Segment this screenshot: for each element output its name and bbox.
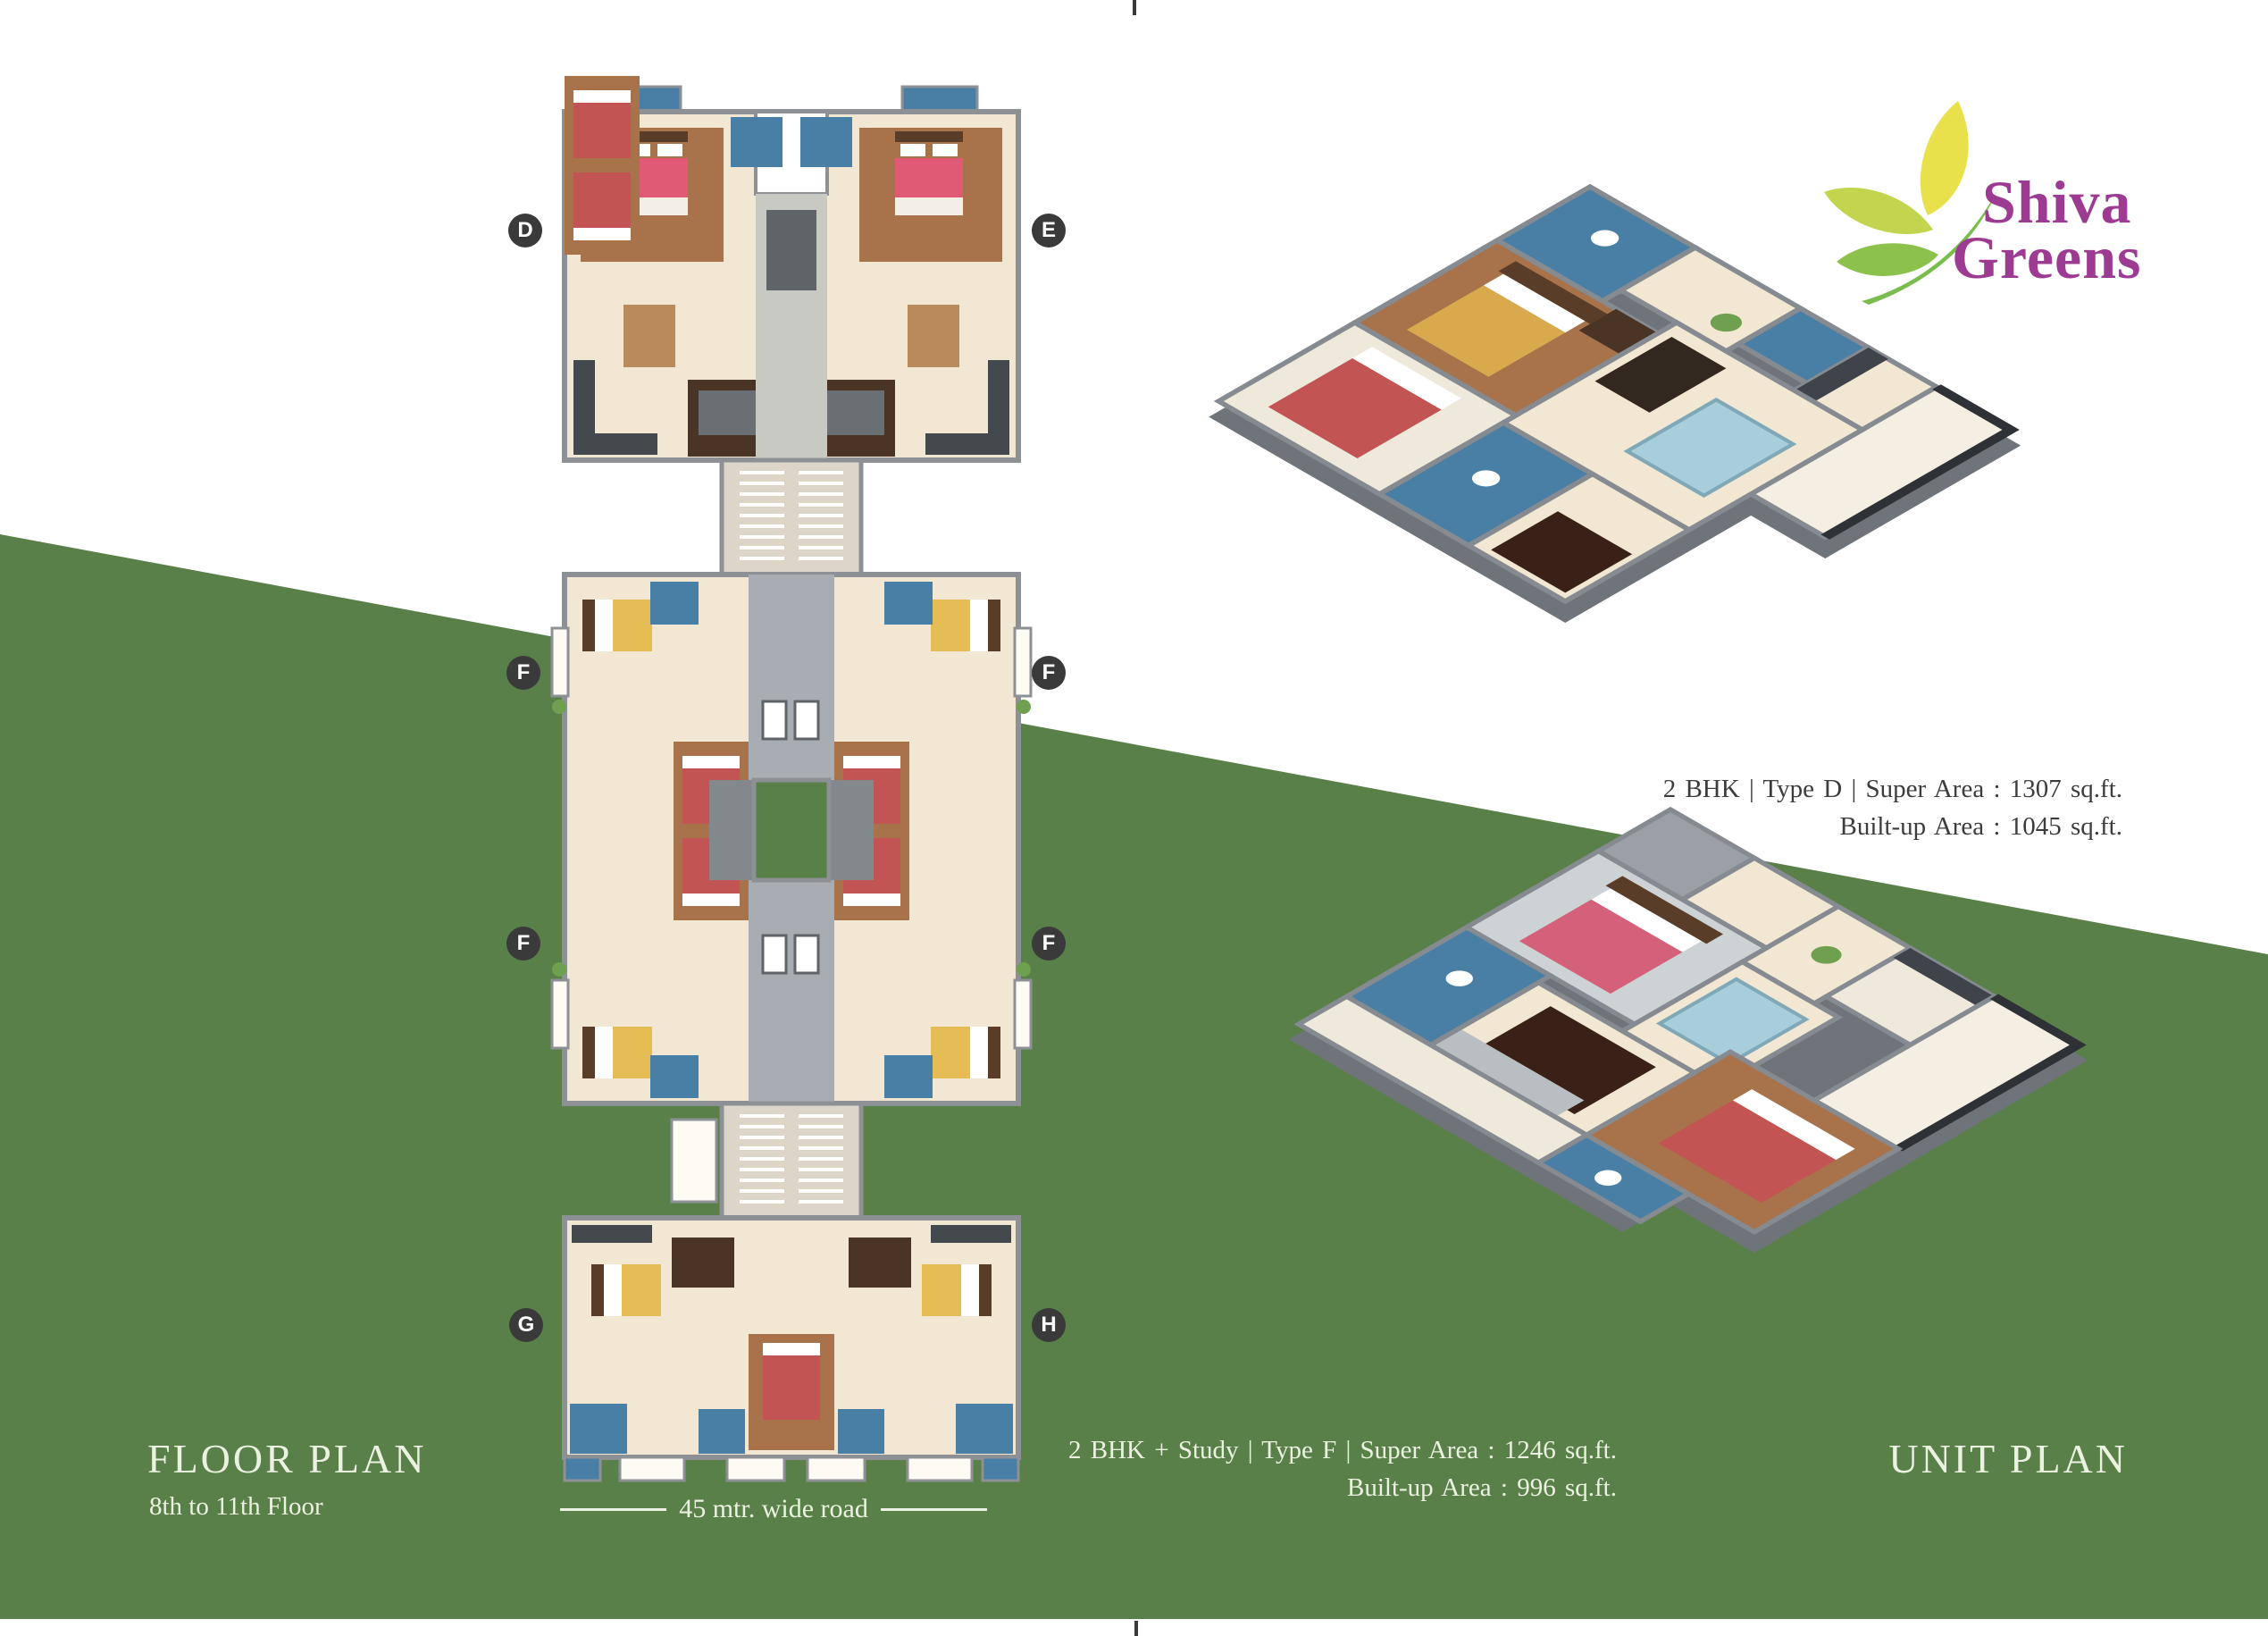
crop-mark [1134, 1621, 1138, 1636]
road-label-row: 45 mtr. wide road [560, 1494, 987, 1524]
road-rule-left [560, 1508, 666, 1511]
unit-label-f3: F [506, 927, 540, 961]
floor-plan-graphic [550, 76, 1033, 1488]
unit-label-h: H [1032, 1308, 1066, 1342]
central-courtyard [754, 780, 829, 880]
unit-label-g: G [509, 1308, 543, 1342]
brand-logo: Shiva Greens [1952, 177, 2142, 284]
unit-render-type-f [1273, 795, 2104, 1474]
floor-plan-stair-core-top [722, 460, 861, 575]
unit-label-e: E [1032, 214, 1066, 247]
crop-mark [1133, 0, 1136, 15]
brand-name-line1: Shiva [1982, 177, 2142, 227]
unit-label-f1: F [506, 656, 540, 690]
unit-f-specs: 2 BHK + Study | Type F | Super Area : 12… [1068, 1431, 1617, 1506]
unit-f-spec-line2: Built-up Area : 996 sq.ft. [1068, 1469, 1617, 1506]
unit-f-spec-line1: 2 BHK + Study | Type F | Super Area : 12… [1068, 1431, 1617, 1469]
unit-d-specs: 2 BHK | Type D | Super Area : 1307 sq.ft… [1663, 770, 2122, 845]
brand-name-line2: Greens [1952, 231, 2142, 284]
unit-label-f4: F [1032, 927, 1066, 961]
unit-d-spec-line2: Built-up Area : 1045 sq.ft. [1663, 808, 2122, 845]
floor-plan-bottom-wing [565, 1218, 1018, 1481]
brochure-page: { "branding": { "name_line1": "Shiva", "… [0, 0, 2268, 1636]
road-rule-right [881, 1508, 987, 1511]
unit-label-d: D [508, 214, 542, 247]
floor-plan-title: FLOOR PLAN [147, 1435, 426, 1482]
unit-d-spec-line1: 2 BHK | Type D | Super Area : 1307 sq.ft… [1663, 770, 2122, 808]
unit-label-f2: F [1032, 656, 1066, 690]
unit-plan-title: UNIT PLAN [1888, 1435, 2128, 1482]
road-label: 45 mtr. wide road [679, 1494, 868, 1524]
floor-plan-subtitle: 8th to 11th Floor [149, 1492, 323, 1522]
floor-plan-stair-core-bottom [672, 1103, 861, 1218]
